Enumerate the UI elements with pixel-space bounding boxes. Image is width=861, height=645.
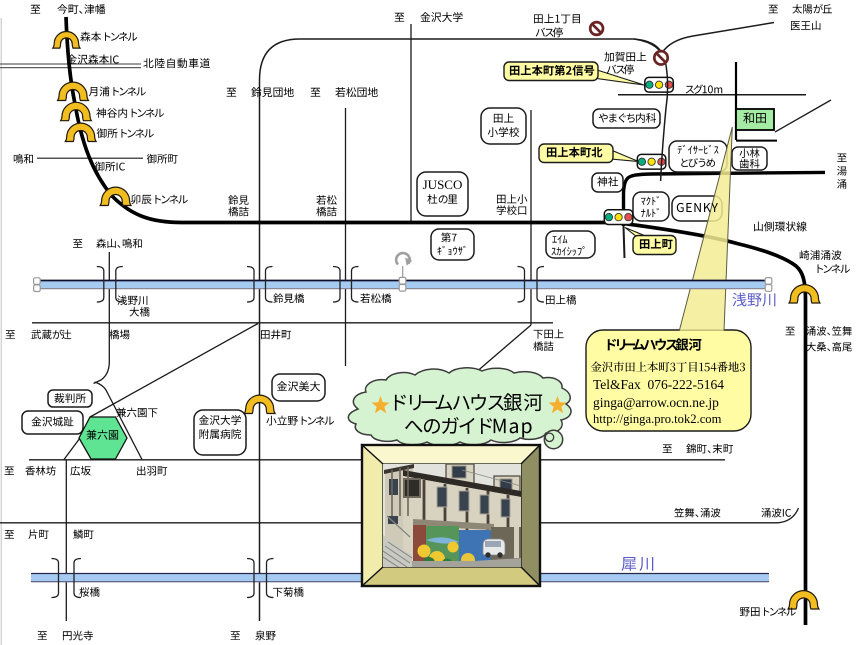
svg-text:Tel&Fax 076-222-5164: Tel&Fax 076-222-5164 xyxy=(593,377,724,392)
svg-text:http://ginga.pro.tok2.com: http://ginga.pro.tok2.com xyxy=(593,412,722,426)
svg-text:JUSCO: JUSCO xyxy=(423,177,463,192)
svg-text:ginga@arrow.ocn.ne.jp: ginga@arrow.ocn.ne.jp xyxy=(593,395,719,410)
